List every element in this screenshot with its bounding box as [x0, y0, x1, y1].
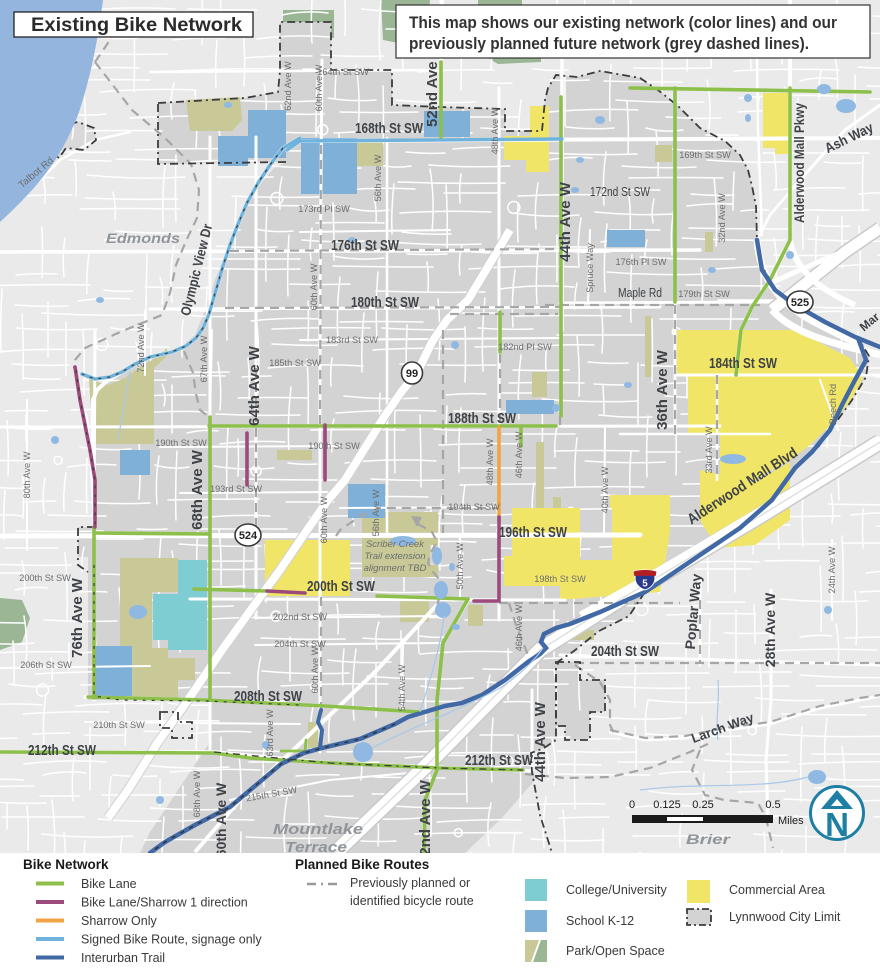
svg-text:60th Ave W: 60th Ave W [213, 782, 229, 857]
svg-text:60th Ave W: 60th Ave W [314, 64, 324, 111]
svg-text:32nd Ave W: 32nd Ave W [717, 193, 727, 243]
svg-text:60th Ave W: 60th Ave W [319, 496, 329, 543]
svg-text:63rd Ave W: 63rd Ave W [265, 709, 275, 757]
svg-text:62nd Ave W: 62nd Ave W [283, 61, 293, 111]
svg-text:Previously planned or: Previously planned or [350, 876, 470, 890]
svg-text:198th St SW: 198th St SW [534, 574, 586, 584]
svg-text:28th Ave W: 28th Ave W [762, 592, 778, 667]
svg-text:176th Pl SW: 176th Pl SW [615, 257, 666, 267]
svg-text:190th St SW: 190th St SW [308, 441, 360, 451]
svg-text:Scriber Creek: Scriber Creek [366, 539, 425, 550]
svg-text:169th St SW: 169th St SW [679, 150, 731, 160]
svg-text:Miles: Miles [778, 815, 804, 827]
svg-text:Brier: Brier [686, 831, 732, 847]
svg-text:College/University: College/University [566, 883, 667, 897]
svg-text:46th Ave W: 46th Ave W [514, 604, 524, 651]
svg-text:44th Ave W: 44th Ave W [532, 701, 549, 782]
svg-text:Sharrow Only: Sharrow Only [81, 914, 157, 928]
svg-text:48th Ave W: 48th Ave W [485, 438, 495, 485]
svg-text:Park/Open Space: Park/Open Space [566, 944, 665, 958]
svg-text:200th St SW: 200th St SW [307, 578, 376, 595]
svg-text:Planned Bike Routes: Planned Bike Routes [295, 857, 429, 872]
svg-text:194th St SW: 194th St SW [448, 502, 500, 512]
svg-text:Maple Rd: Maple Rd [618, 285, 662, 300]
svg-text:previously planned future netw: previously planned future network (grey … [409, 35, 809, 53]
svg-text:200th St SW: 200th St SW [19, 573, 71, 583]
svg-text:46th Ave W: 46th Ave W [514, 431, 524, 478]
svg-text:School K-12: School K-12 [566, 914, 634, 928]
svg-text:24th Ave W: 24th Ave W [827, 546, 837, 593]
svg-text:0: 0 [629, 799, 635, 811]
svg-text:52nd Ave W: 52nd Ave W [417, 779, 434, 864]
svg-text:164th St SW: 164th St SW [317, 67, 369, 77]
svg-text:212th St SW: 212th St SW [465, 752, 534, 769]
svg-text:Beech Rd: Beech Rd [828, 384, 838, 424]
svg-text:5: 5 [642, 579, 648, 590]
svg-text:Signed Bike Route, signage onl: Signed Bike Route, signage only [81, 933, 262, 947]
svg-text:172nd St SW: 172nd St SW [590, 185, 650, 199]
svg-text:68th Ave W: 68th Ave W [192, 770, 202, 817]
svg-text:204th St SW: 204th St SW [591, 643, 660, 660]
svg-text:196th St SW: 196th St SW [499, 524, 568, 541]
svg-text:33rd Ave W: 33rd Ave W [704, 426, 714, 474]
svg-text:0.25: 0.25 [692, 799, 713, 811]
svg-text:identified bicycle route: identified bicycle route [350, 894, 474, 908]
svg-text:179th St SW: 179th St SW [678, 289, 730, 299]
svg-text:68th Ave W: 68th Ave W [189, 449, 206, 530]
svg-text:This map shows our existing ne: This map shows our existing network (col… [409, 14, 838, 32]
svg-text:0.5: 0.5 [765, 799, 780, 811]
svg-text:183rd St SW: 183rd St SW [326, 335, 378, 345]
svg-text:208th St SW: 208th St SW [234, 688, 303, 705]
svg-text:N: N [825, 806, 849, 843]
svg-text:Spruce Way: Spruce Way [585, 243, 595, 293]
svg-text:67th Ave W: 67th Ave W [199, 335, 209, 382]
svg-text:Bike Lane: Bike Lane [81, 877, 137, 891]
svg-text:184th St SW: 184th St SW [709, 355, 778, 372]
svg-text:60th Ave W: 60th Ave W [309, 263, 319, 310]
svg-text:Bike Network: Bike Network [23, 857, 109, 872]
svg-text:56th Ave W: 56th Ave W [371, 489, 381, 536]
svg-text:188th St SW: 188th St SW [448, 410, 517, 427]
svg-text:50th Ave W: 50th Ave W [455, 542, 465, 589]
svg-text:48th Ave W: 48th Ave W [490, 107, 500, 154]
svg-text:Alderwood Mall Pkwy: Alderwood Mall Pkwy [792, 103, 807, 223]
svg-text:80th Ave W: 80th Ave W [22, 451, 32, 498]
svg-text:206th St SW: 206th St SW [20, 660, 72, 670]
svg-text:176th St SW: 176th St SW [331, 237, 400, 254]
svg-text:212th St SW: 212th St SW [28, 742, 97, 759]
svg-text:210th St SW: 210th St SW [93, 720, 145, 730]
svg-text:180th St SW: 180th St SW [351, 294, 420, 311]
svg-text:alignment TBD: alignment TBD [364, 563, 427, 574]
svg-text:40th Ave W: 40th Ave W [600, 466, 610, 513]
svg-text:36th Ave W: 36th Ave W [654, 349, 671, 430]
svg-text:193rd St SW: 193rd St SW [210, 484, 262, 494]
svg-text:185th St SW: 185th St SW [269, 358, 321, 368]
svg-text:182nd Pl SW: 182nd Pl SW [498, 342, 552, 352]
svg-text:44th Ave W: 44th Ave W [557, 181, 574, 262]
svg-text:76th Ave W: 76th Ave W [69, 577, 86, 658]
svg-text:202nd St SW: 202nd St SW [273, 612, 327, 622]
svg-text:60th Ave W: 60th Ave W [310, 646, 320, 693]
svg-text:Bike Lane/Sharrow 1 direction: Bike Lane/Sharrow 1 direction [81, 896, 248, 910]
svg-text:Interurban Trail: Interurban Trail [81, 951, 165, 965]
svg-text:168th St SW: 168th St SW [355, 120, 424, 137]
svg-text:0.125: 0.125 [653, 799, 681, 811]
svg-text:525: 525 [791, 297, 809, 309]
svg-text:54th Ave W: 54th Ave W [397, 664, 407, 711]
svg-text:99: 99 [406, 368, 418, 380]
svg-text:524: 524 [239, 530, 258, 542]
svg-text:Commercial Area: Commercial Area [729, 883, 825, 897]
svg-text:64th Ave W: 64th Ave W [246, 345, 263, 426]
svg-text:56th Ave W: 56th Ave W [373, 154, 383, 201]
svg-text:Trail extension: Trail extension [364, 551, 425, 562]
svg-text:72nd Ave W: 72nd Ave W [136, 323, 146, 373]
svg-text:Edmonds: Edmonds [106, 230, 180, 246]
svg-text:Lynnwood City Limit: Lynnwood City Limit [729, 910, 841, 924]
svg-text:Existing Bike Network: Existing Bike Network [31, 15, 242, 36]
svg-text:190th St SW: 190th St SW [155, 438, 207, 448]
svg-text:Mountlake: Mountlake [273, 821, 363, 838]
svg-text:173rd Pl SW: 173rd Pl SW [298, 204, 350, 214]
